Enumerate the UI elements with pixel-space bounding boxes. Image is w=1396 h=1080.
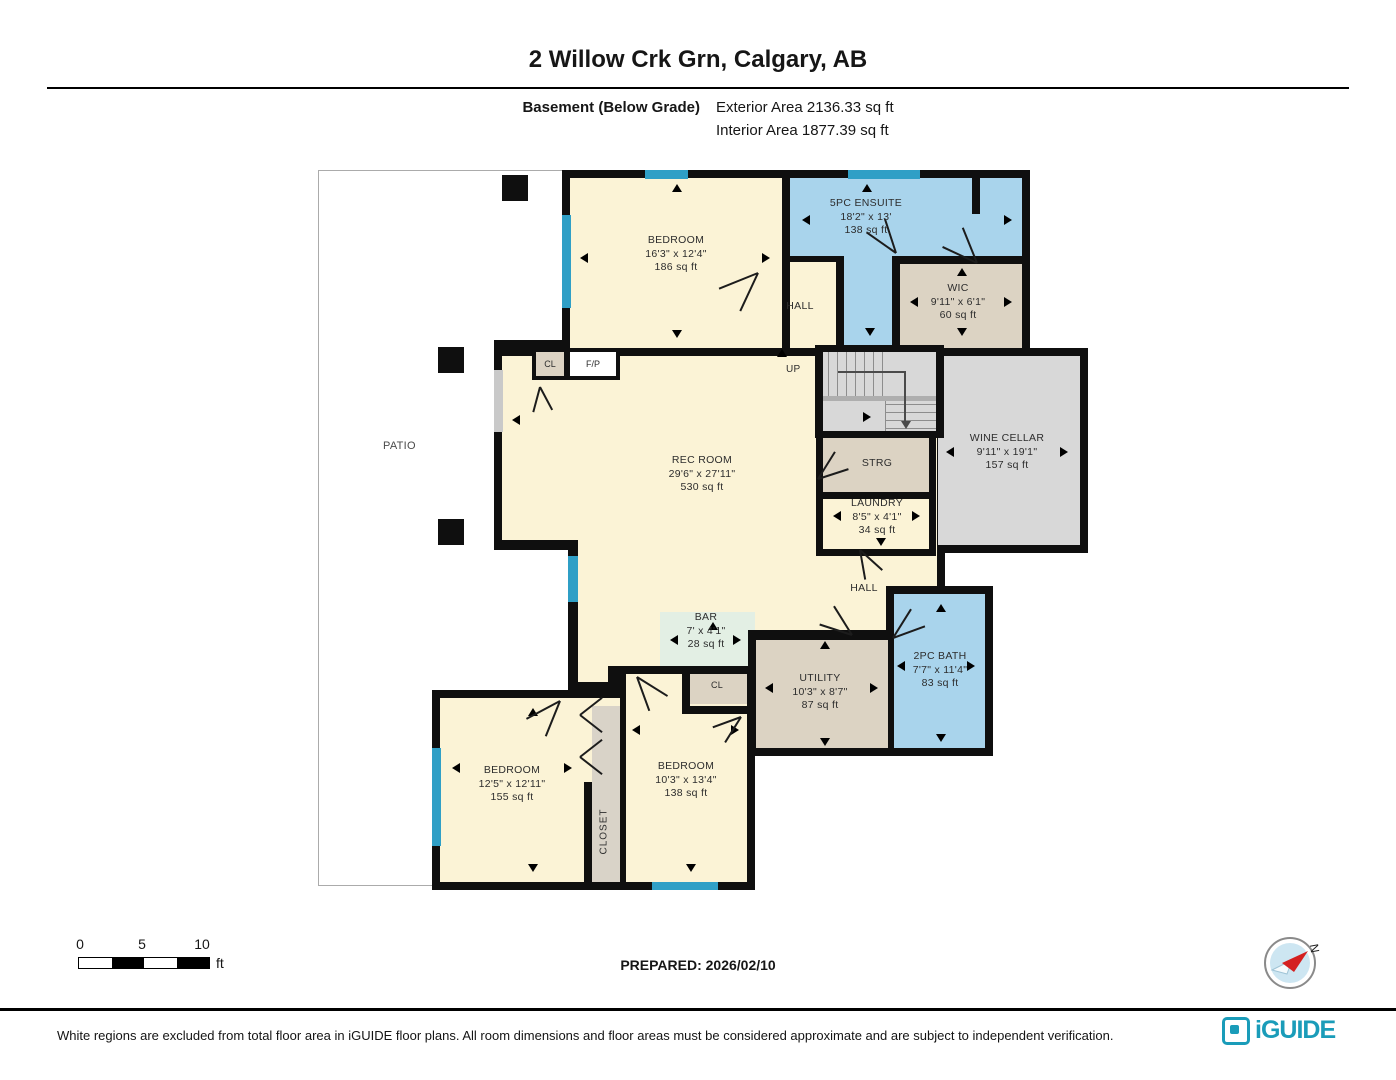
room-label-utility: UTILITY 10'3" x 8'7" 87 sq ft (755, 672, 885, 713)
stair-step-line (828, 352, 829, 396)
floor-label: Basement (Below Grade) (330, 99, 700, 116)
stair-step-line (864, 352, 865, 396)
cl-bedroom-label: CL (697, 680, 737, 690)
dimension-arrow (865, 328, 875, 336)
stair-direction-arrow (901, 421, 911, 429)
room-label-bath: 2PC BATH 7'7" x 11'4" 83 sq ft (875, 650, 1005, 691)
stair-direction-line (838, 371, 906, 373)
patio-label: PATIO (383, 440, 416, 452)
room-label-bedroom-bl: BEDROOM 12'5" x 12'11" 155 sq ft (447, 764, 577, 805)
window (848, 170, 920, 179)
dimension-arrow (686, 864, 696, 872)
dimension-arrow (672, 184, 682, 192)
header-divider (47, 87, 1349, 89)
stair-step-line (886, 428, 936, 429)
dimension-arrow (512, 415, 520, 425)
dimension-arrow (820, 738, 830, 746)
stair-step-line (837, 352, 838, 396)
closet-rec-label: CL (544, 359, 556, 369)
window (562, 215, 571, 308)
scale-bar (78, 957, 210, 969)
room-label-rec: REC ROOM 29'6" x 27'11" 530 sq ft (637, 454, 767, 495)
exterior-area: Exterior Area 2136.33 sq ft (716, 99, 894, 116)
dimension-arrow (528, 864, 538, 872)
stair-direction-line (904, 371, 906, 421)
room-label-strg: STRG (812, 457, 942, 471)
room-label-wine-cellar: WINE CELLAR 9'11" x 19'1" 157 sq ft (942, 432, 1072, 473)
stair-step-line (885, 401, 886, 431)
dimension-arrow (1004, 215, 1012, 225)
dimension-arrow (936, 734, 946, 742)
scale-unit: ft (216, 955, 224, 971)
stairs-up-label: UP (786, 364, 801, 375)
closet-label: CLOSET (599, 790, 610, 874)
stair-step-line (886, 420, 936, 421)
patio-door (494, 370, 503, 432)
fireplace-label: F/P (586, 359, 600, 369)
room-label-bedroom-top: BEDROOM 16'3" x 12'4" 186 sq ft (611, 234, 741, 275)
room-label-laundry: LAUNDRY 8'5" x 4'1" 34 sq ft (812, 497, 942, 538)
dimension-arrow (863, 412, 871, 422)
wall-cl-bottom (682, 706, 747, 714)
dimension-arrow (777, 349, 787, 357)
stair-step-line (886, 404, 936, 405)
window (568, 556, 578, 602)
closet-rec-box: CL (532, 348, 568, 380)
dimension-arrow (820, 641, 830, 649)
patio-pillar (502, 175, 528, 201)
stair-step-line (882, 352, 883, 396)
prepared-date: PREPARED: 2026/02/10 (548, 957, 848, 973)
window (432, 748, 441, 846)
dimension-arrow (876, 538, 886, 546)
fireplace-box: F/P (566, 348, 620, 380)
dimension-arrow (862, 184, 872, 192)
stair-step-line (846, 352, 847, 396)
room-label-ensuite: 5PC ENSUITE 18'2" x 13' 138 sq ft (801, 197, 931, 238)
scale-tick-5: 5 (134, 936, 150, 952)
iguide-camera-icon (1222, 1017, 1250, 1045)
room-label-bedroom-br: BEDROOM 10'3" x 13'4" 138 sq ft (621, 760, 751, 801)
stair-step-line (873, 352, 874, 396)
wall-notch-h (494, 540, 578, 550)
room-label-wic: WIC 9'11" x 6'1" 60 sq ft (893, 282, 1023, 323)
interior-area: Interior Area 1877.39 sq ft (716, 122, 889, 139)
room-label-hall-bottom: HALL (799, 582, 929, 596)
stair-step-line (886, 412, 936, 413)
room-label-hall-top: HALL (735, 300, 865, 314)
wall-ensuite-divider (972, 178, 980, 214)
window (645, 170, 688, 179)
iguide-brand-text: iGUIDE (1255, 1016, 1335, 1045)
dimension-arrow (632, 725, 640, 735)
floor-plan-page: 2 Willow Crk Grn, Calgary, AB Basement (… (0, 0, 1396, 1080)
stair-landing-edge (823, 396, 936, 401)
iguide-logo: iGUIDE (1222, 1016, 1335, 1045)
dimension-arrow (957, 328, 967, 336)
compass-icon: N (1262, 934, 1326, 992)
footer-divider (0, 1008, 1396, 1011)
page-title: 2 Willow Crk Grn, Calgary, AB (0, 46, 1396, 74)
patio-pillar (438, 519, 464, 545)
window (652, 882, 718, 890)
scale-tick-0: 0 (72, 936, 88, 952)
dimension-arrow (672, 330, 682, 338)
dimension-arrow (936, 604, 946, 612)
dimension-arrow (762, 253, 770, 263)
patio-notch (490, 548, 568, 690)
stair-step-line (855, 352, 856, 396)
dimension-arrow (957, 268, 967, 276)
compass-north-label: N (1307, 943, 1322, 954)
patio-pillar (438, 347, 464, 373)
dimension-arrow (580, 253, 588, 263)
room-label-bar: BAR 7' x 4'1" 28 sq ft (641, 611, 771, 652)
disclaimer-text: White regions are excluded from total fl… (57, 1028, 1207, 1043)
scale-tick-10: 10 (192, 936, 212, 952)
